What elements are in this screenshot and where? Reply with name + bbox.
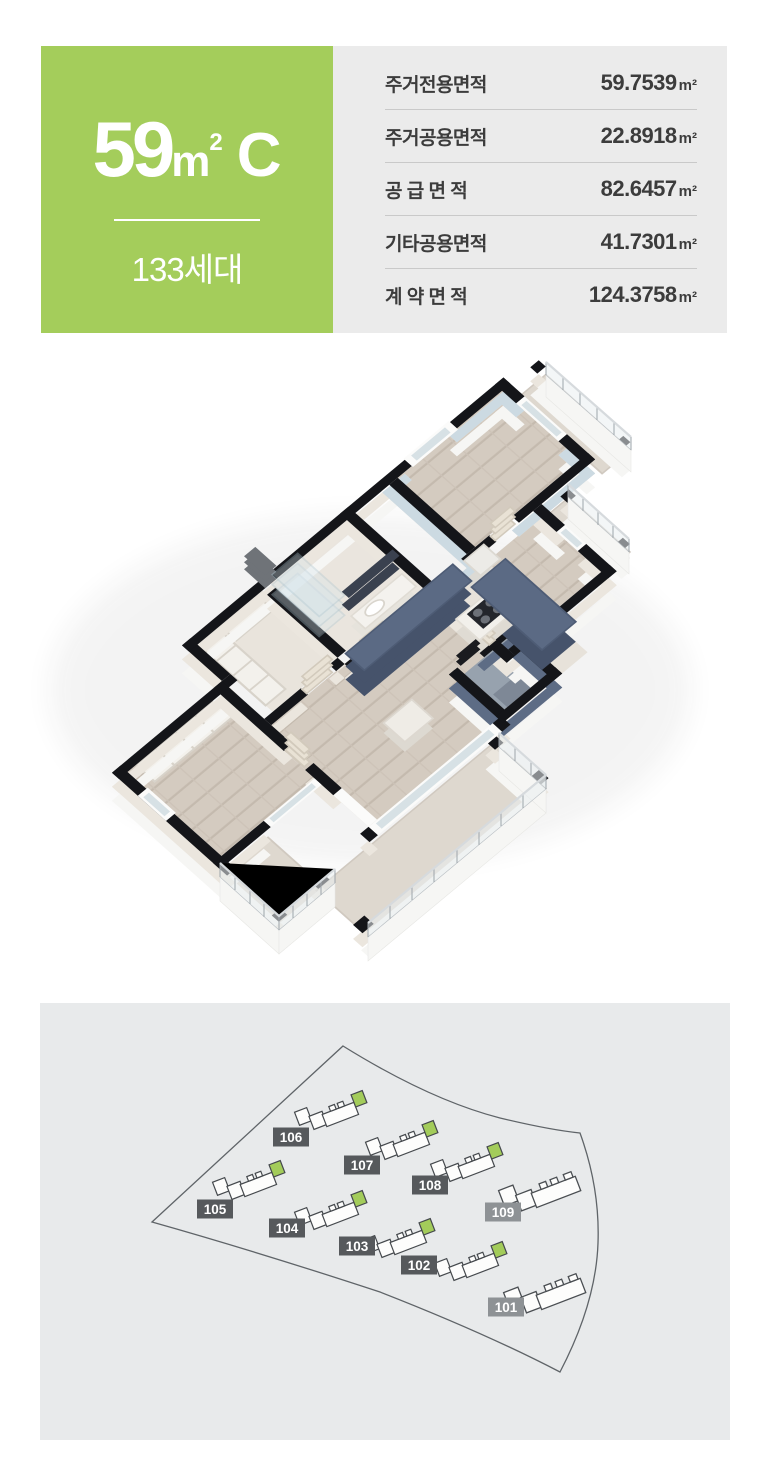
row-label: 공 급 면 적 <box>385 176 467 203</box>
building-badge-label: 104 <box>276 1221 299 1236</box>
area-table-card: 주거전용면적 59.7539m² 주거공용면적 22.8918m² 공 급 면 … <box>333 46 727 333</box>
building-badge-label: 109 <box>492 1205 515 1220</box>
row-label: 기타공용면적 <box>385 229 487 256</box>
building-badge-label: 108 <box>419 1178 442 1193</box>
building-badge-label: 105 <box>204 1202 227 1217</box>
area-table: 주거전용면적 59.7539m² 주거공용면적 22.8918m² 공 급 면 … <box>385 57 697 321</box>
building-badge-label: 107 <box>351 1158 374 1173</box>
building-badge-label: 106 <box>280 1130 303 1145</box>
unit-area-unit: m <box>171 137 209 186</box>
building-badge-label: 101 <box>495 1300 518 1315</box>
table-row: 공 급 면 적 82.6457m² <box>385 163 697 216</box>
row-value: 124.3758m² <box>589 282 697 308</box>
row-value: 22.8918m² <box>601 123 697 149</box>
building-badge-label: 102 <box>408 1258 431 1273</box>
table-row: 주거전용면적 59.7539m² <box>385 57 697 110</box>
page: { "header": { "type_card": { "area_numbe… <box>0 0 768 1474</box>
row-label: 주거전용면적 <box>385 70 487 97</box>
unit-type-title: 59m2C <box>41 104 333 195</box>
unit-type-card: 59m2C 133세대 <box>41 46 333 333</box>
household-count: 133세대 <box>41 243 333 291</box>
unit-area-sup: 2 <box>209 129 222 156</box>
table-row: 주거공용면적 22.8918m² <box>385 110 697 163</box>
table-row: 계 약 면 적 124.3758m² <box>385 269 697 321</box>
table-row: 기타공용면적 41.7301m² <box>385 216 697 269</box>
floor-plan-3d <box>0 360 768 1000</box>
row-label: 계 약 면 적 <box>385 282 467 309</box>
unit-type-letter: C <box>237 121 282 190</box>
row-label: 주거공용면적 <box>385 123 487 150</box>
row-value: 82.6457m² <box>601 176 697 202</box>
building-badge-label: 103 <box>346 1239 369 1254</box>
site-map-background <box>40 1003 730 1440</box>
unit-area-number: 59 <box>92 105 171 193</box>
row-value: 41.7301m² <box>601 229 697 255</box>
site-map: 106 107 108 109 105 104 103 102 101 <box>40 1003 730 1440</box>
row-value: 59.7539m² <box>601 70 697 96</box>
card-divider <box>114 219 260 221</box>
